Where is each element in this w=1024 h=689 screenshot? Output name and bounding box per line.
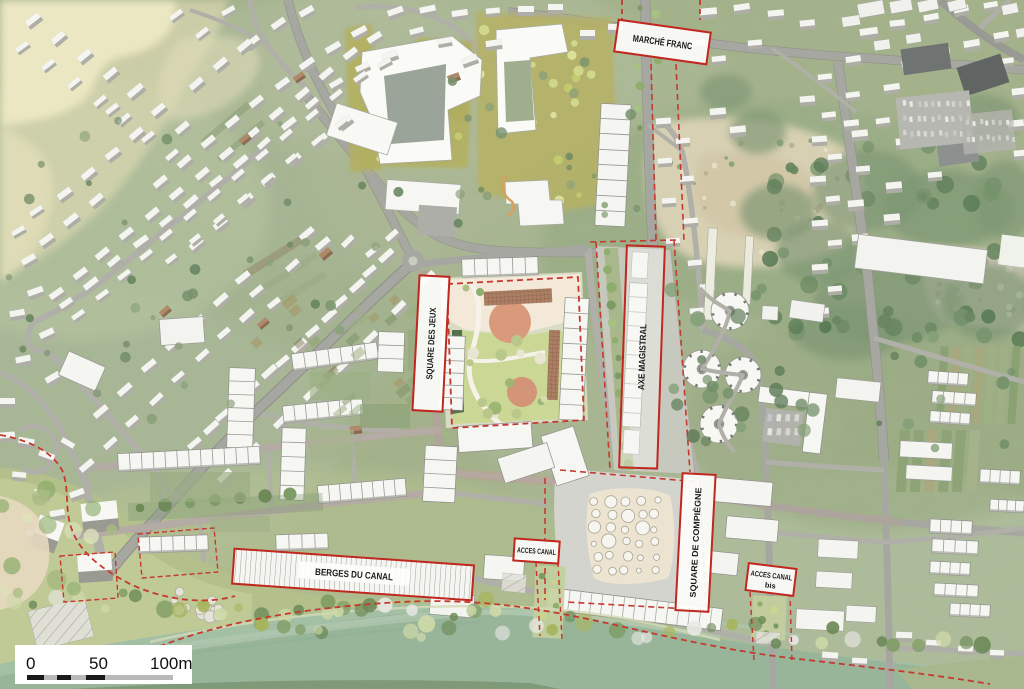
svg-text:100m: 100m bbox=[150, 654, 193, 673]
svg-text:bis: bis bbox=[764, 580, 776, 590]
svg-text:50: 50 bbox=[89, 654, 108, 673]
svg-text:0: 0 bbox=[26, 654, 35, 673]
